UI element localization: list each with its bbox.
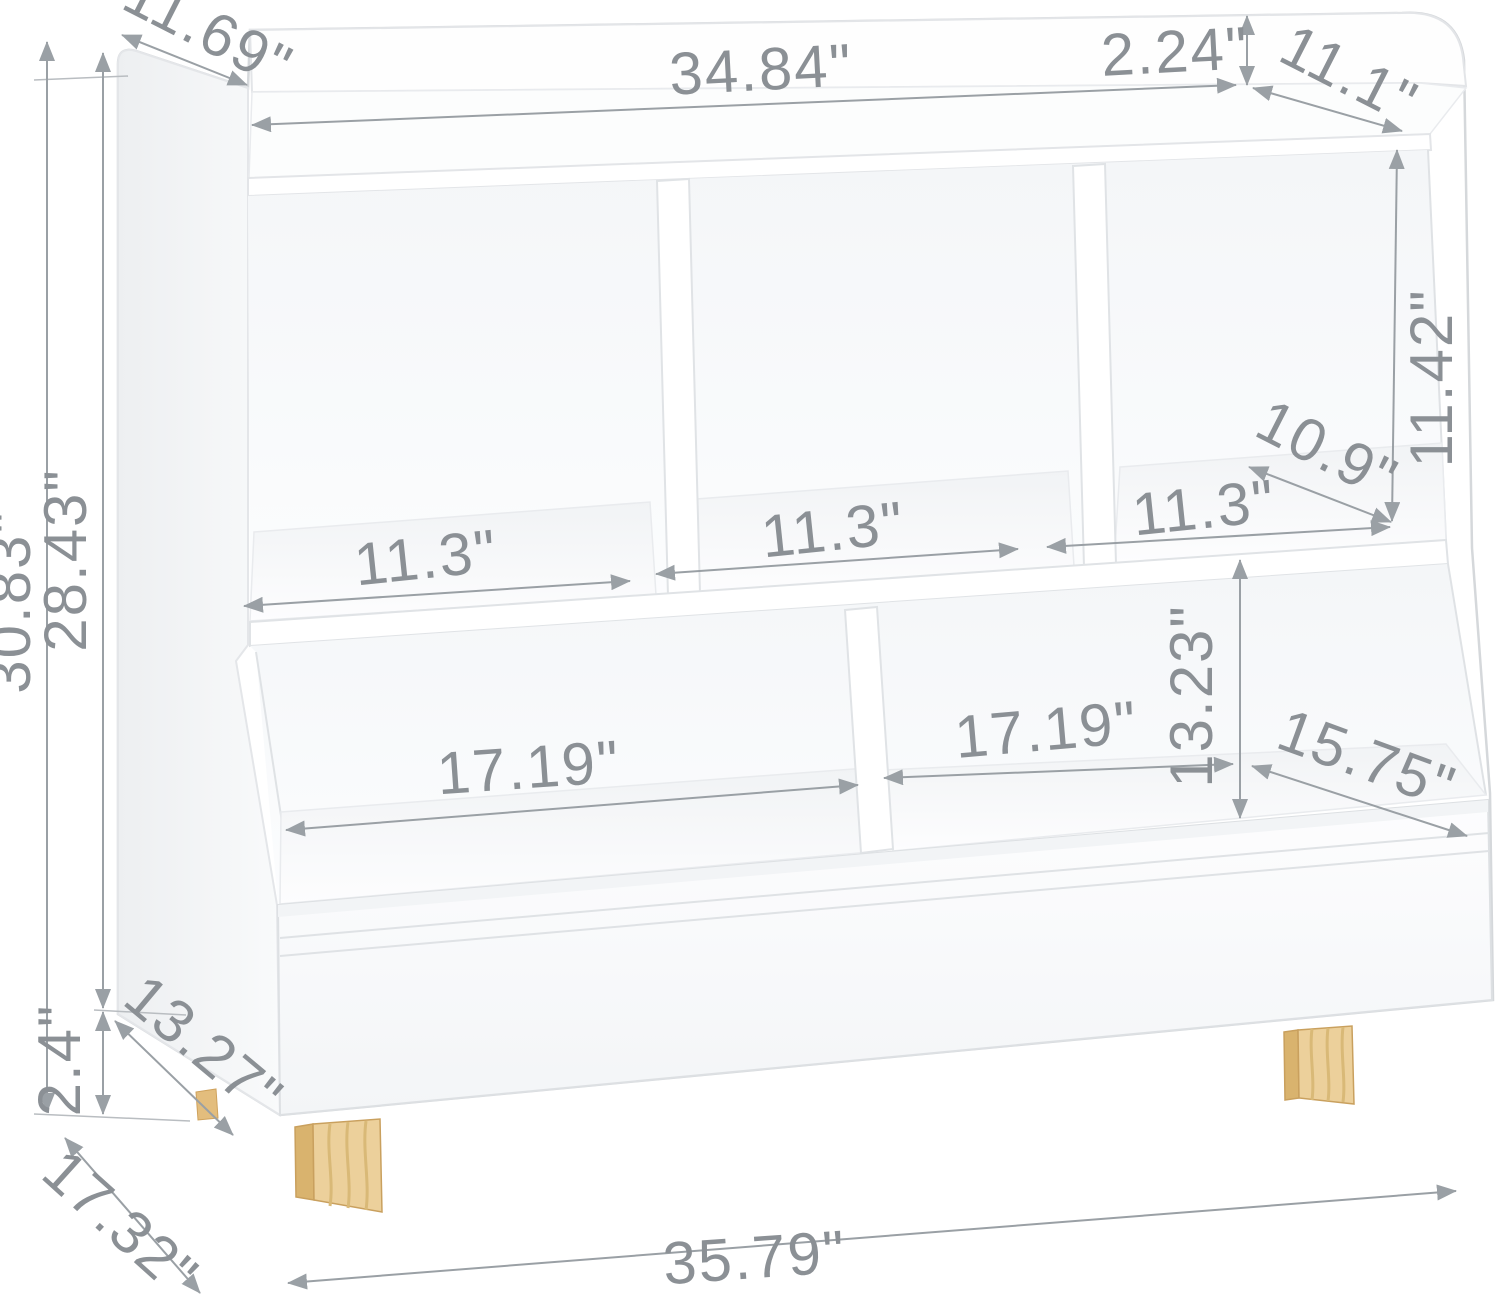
- dim-overall-width: 35.79": [661, 1218, 849, 1294]
- diagram-canvas: 11.69" 34.84" 2.24" 11.1" 11.42" 10.9" 1…: [0, 0, 1500, 1294]
- dim-leg-height: 2.4": [26, 1004, 93, 1117]
- arrow-overall-width: [288, 1191, 1456, 1283]
- product-dimension-diagram: 11.69" 34.84" 2.24" 11.1" 11.42" 10.9" 1…: [0, 0, 1500, 1294]
- right-leg: [1284, 1026, 1354, 1104]
- dim-back-rail-height: 2.24": [1099, 14, 1250, 89]
- dim-body-height: 28.43": [32, 468, 99, 651]
- dim-top-shelf-width: 34.84": [668, 31, 855, 108]
- left-leg: [295, 1119, 382, 1212]
- extension-tick-top: [34, 76, 128, 80]
- dim-cubby-height: 11.42": [1398, 289, 1465, 468]
- dim-base-depth: 17.32": [30, 1136, 211, 1294]
- dim-bin-height: 13.23": [1158, 604, 1225, 787]
- dim-bin-width-left: 17.19": [435, 728, 623, 808]
- storage-organizer: [118, 13, 1493, 1212]
